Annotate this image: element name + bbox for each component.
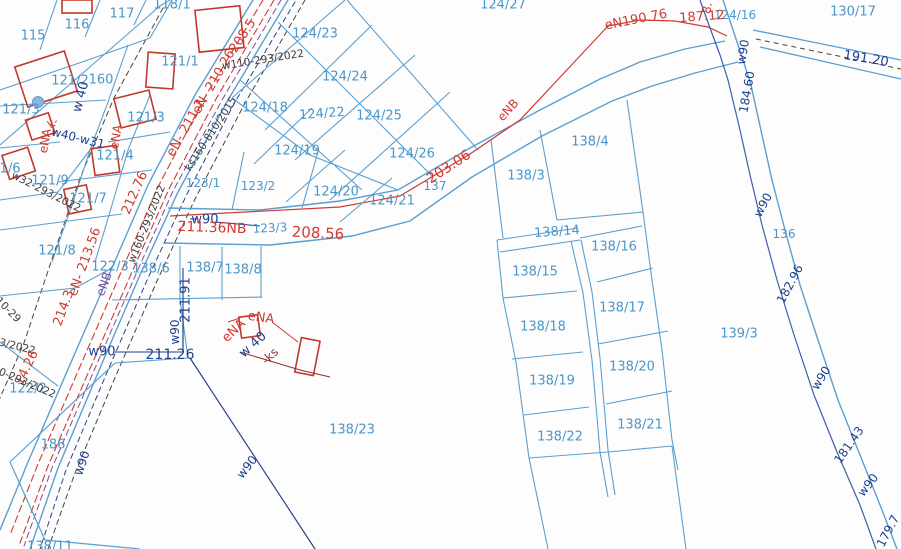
map-label: 121/1 [161,55,198,70]
map-label: 121/8 [38,244,75,259]
map-labels: 115116117118/1121/1121/2160121/3121/3121… [0,0,901,549]
parcel-line [0,214,122,230]
map-label: 124/24 [322,70,368,85]
map-label: 211.36NB [177,219,247,237]
map-label: w90 [88,345,115,360]
map-label: 124/22 [299,105,346,123]
map-label: eNB [495,96,522,124]
map-label: eNA [107,123,125,150]
cadastral-map-svg: 115116117118/1121/1121/2160121/3121/3121… [0,0,901,549]
map-label: eNA [219,316,249,345]
parcel-line [627,100,643,212]
map-label: 138/19 [529,374,575,389]
map-label: 211.26 [146,347,195,363]
map-label: 10-29 [0,295,23,325]
parcel-line [557,212,643,220]
map-label: w90 [234,453,260,481]
road-central-ne [165,20,738,245]
map-label: w90 [808,364,833,393]
map-label: eN190.76 [604,7,669,34]
map-label: 138/3 [507,169,544,184]
parcel-line [503,291,577,298]
map-label: 93/2022 [0,335,37,357]
map-label: 8. [699,1,715,15]
parcel-line [240,80,362,190]
map-label: w90 [71,449,92,477]
map-label: 138/23 [329,423,375,438]
parcel-line [672,446,686,549]
map-label: 138/22 [537,430,583,445]
map-label: 138/16 [591,240,637,255]
parcel-line [529,458,548,549]
map-canvas[interactable]: 115116117118/1121/1121/2160121/3121/3121… [0,0,901,549]
map-label: 208.56 [291,223,344,244]
map-label: 124/25 [356,109,402,124]
map-label: 138/17 [599,301,645,316]
map-label: 124/20 [313,185,359,200]
map-label: 160 [89,73,114,88]
map-label: 130/17 [830,5,876,20]
parcel-line [500,240,580,252]
map-label: 138/15 [512,265,558,280]
map-label: 123/1 [186,176,221,190]
map-label: 124/21 [369,194,415,209]
map-label: 124/19 [274,144,320,159]
parcel-line [580,226,642,238]
map-label: 122/3 [91,260,128,275]
map-label: 138/7 [186,261,223,276]
map-label: 138/14 [534,223,581,241]
map-label: 138/4 [571,135,608,150]
map-label: 124/18 [242,101,288,116]
map-label: 136 [773,227,796,241]
parcel-line [10,462,45,540]
map-label: 138/8 [224,263,261,278]
map-label: 138/21 [617,418,663,433]
map-label: 214.3 [51,288,78,328]
map-label: 138/11 [27,540,73,549]
map-label: 121/3 [2,103,39,118]
parcel-line [606,391,672,404]
map-label: eNA [247,309,276,328]
map-label: 138/20 [609,360,655,375]
map-label: 138/6 [132,262,169,277]
parcel-line [302,152,318,208]
parcel-line [524,407,589,415]
map-label: 124/23 [292,27,338,42]
map-label: 115 [21,29,46,44]
map-label: 118/1 [153,0,190,13]
map-label: w90 [168,319,182,344]
map-label: 123/3 [252,220,287,236]
map-label: 179.7 [874,513,901,549]
map-label: 124/26 [389,147,435,162]
map-label: w90 [855,471,881,499]
map-label: 116 [65,18,90,33]
map-label: 184.60 [736,70,757,114]
parcel-line [512,352,583,359]
parcel-line [134,0,146,25]
parcel-line [598,331,668,344]
parcel-line [597,268,653,282]
parcel-line [491,140,503,238]
map-label: 123/2 [241,179,276,193]
map-label: w90 [734,38,752,65]
parcels-bottom-left [10,358,315,549]
map-label: 139/3 [720,327,757,342]
map-label: 117 [110,7,135,22]
building [62,0,92,13]
map-label: 211.91 [179,277,194,323]
boundary-w90-dark [190,358,315,549]
map-label: 186 [41,438,66,453]
map-label: 124/27 [480,0,526,13]
map-label: 138/18 [520,320,566,335]
map-label: 121/3 [127,111,164,126]
